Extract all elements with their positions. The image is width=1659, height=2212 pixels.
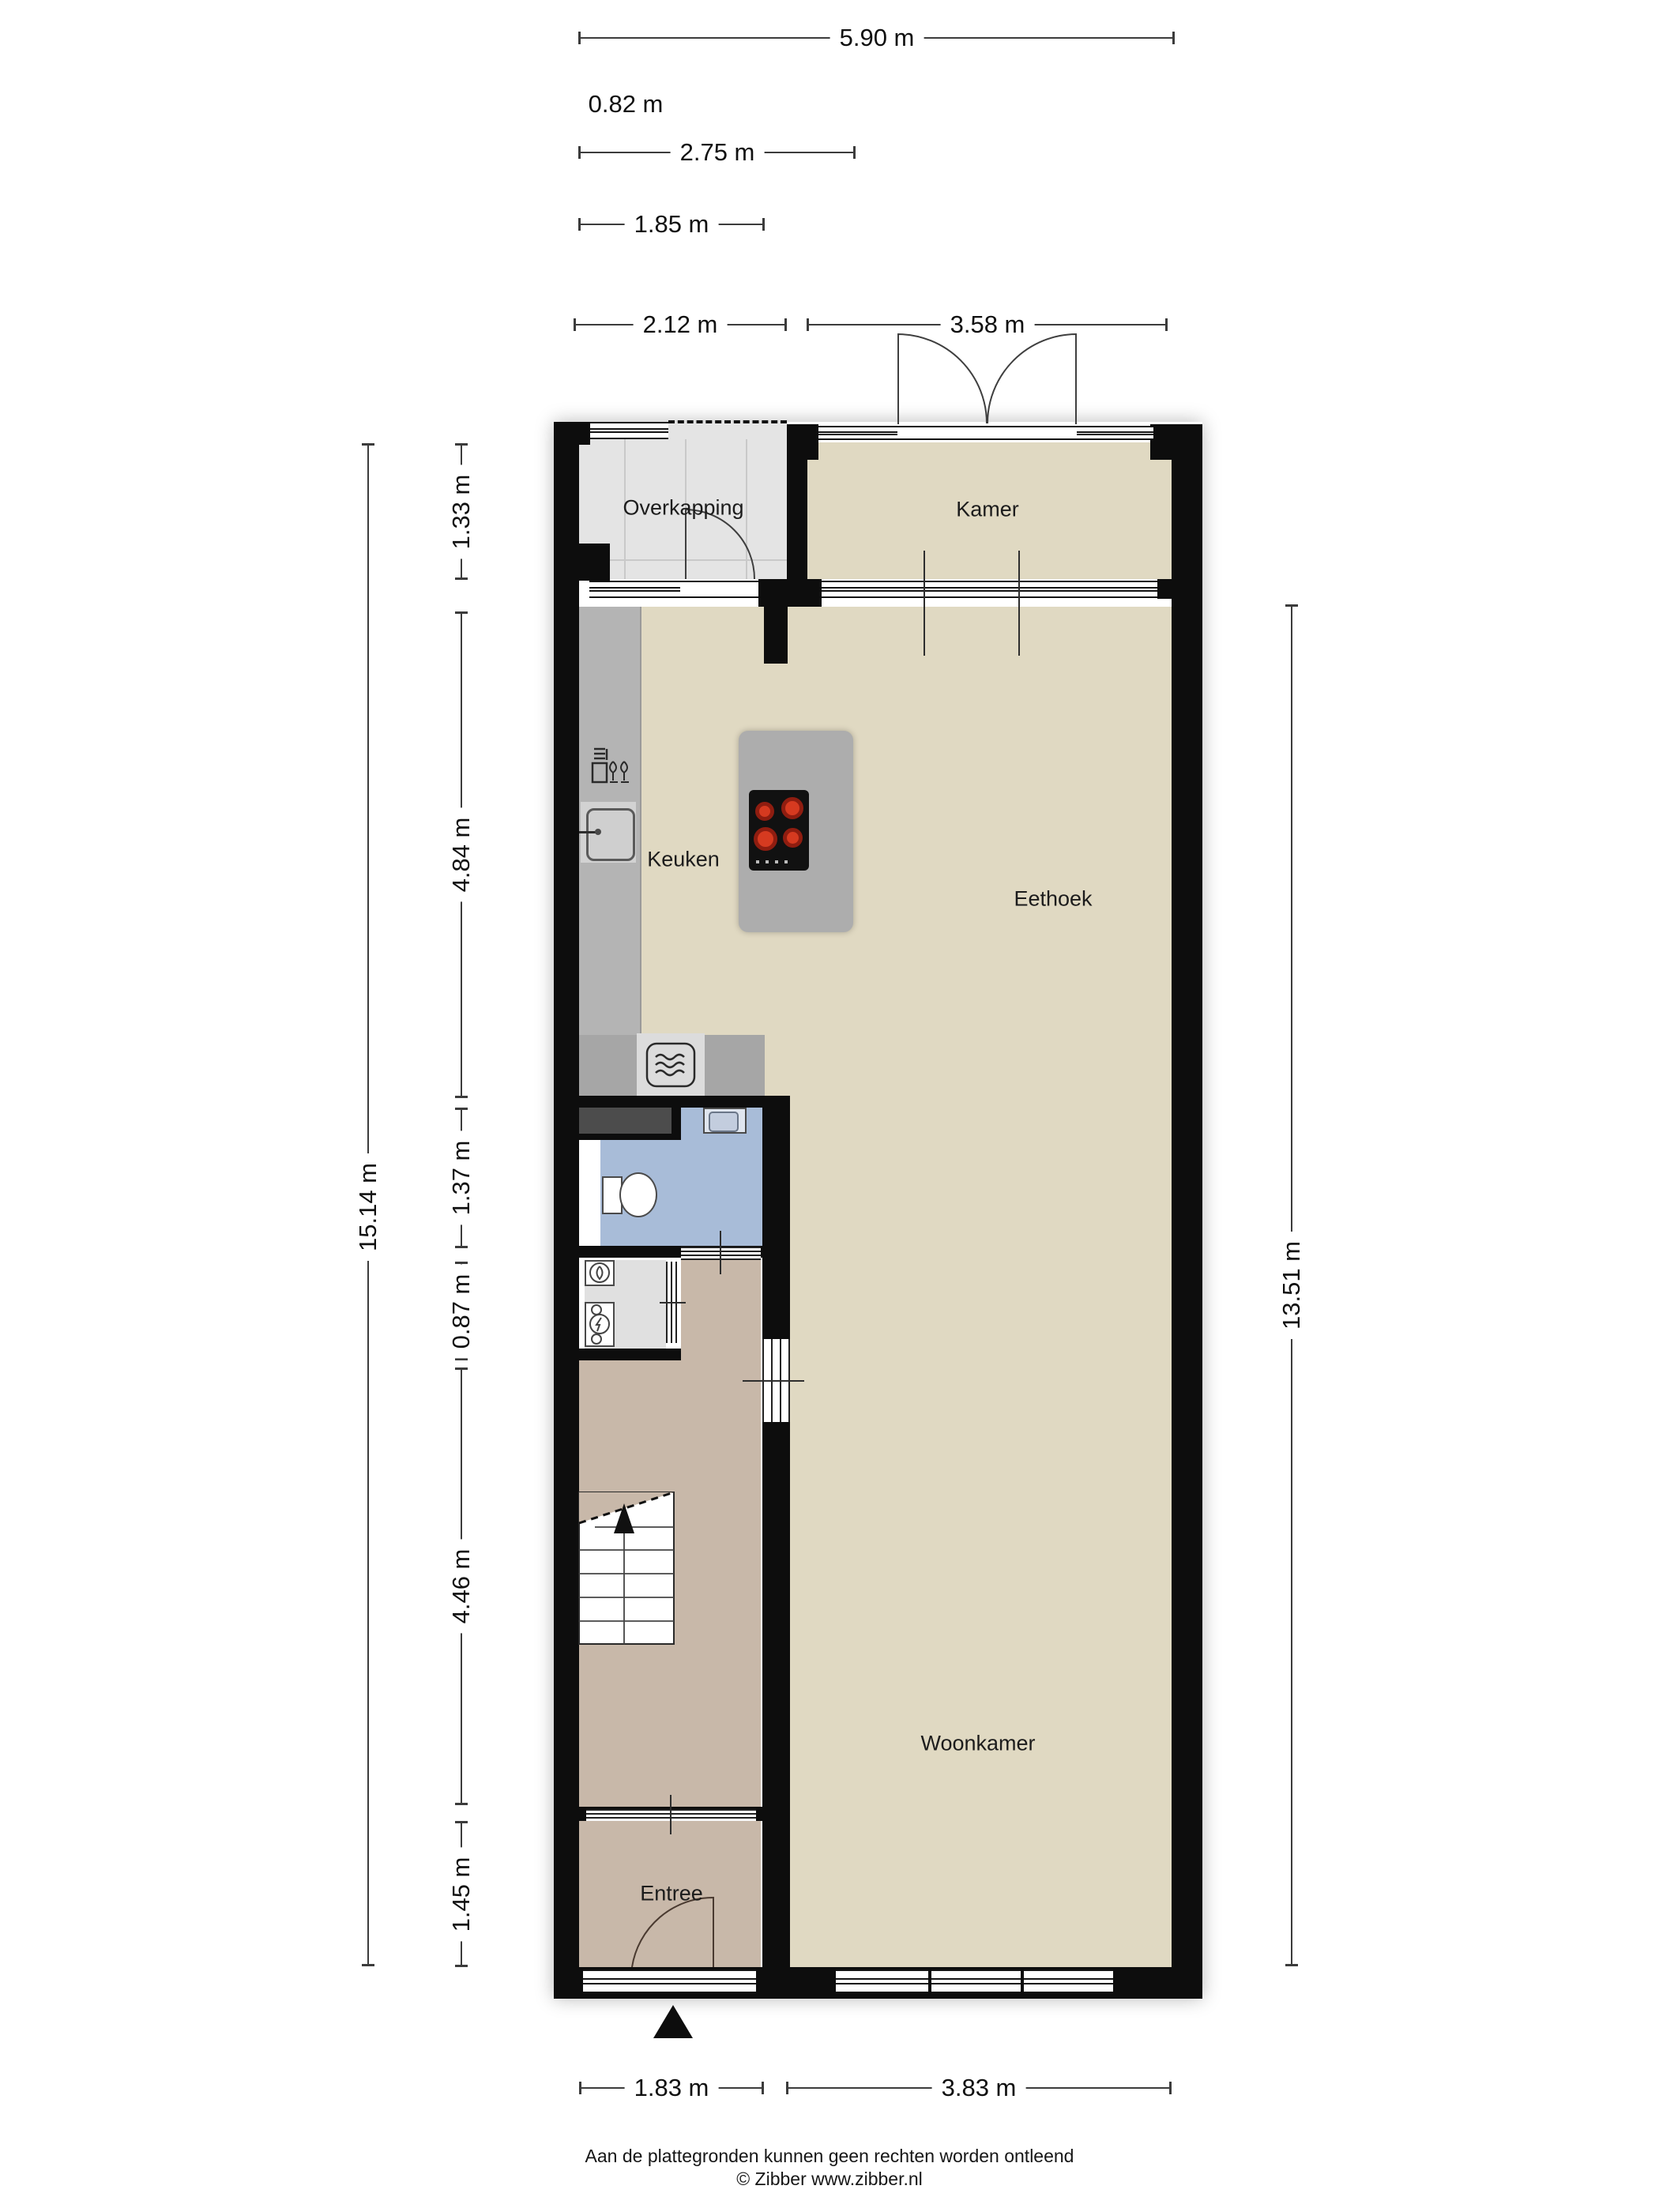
faucet-dot — [595, 829, 601, 835]
window-overkapping-top — [590, 422, 668, 439]
dishwasher-icon — [589, 747, 630, 788]
dim-label-left-1: 4.84 m — [446, 808, 476, 902]
sliding-panel-line — [1018, 551, 1020, 656]
french-door-sill — [897, 426, 1077, 440]
burner-icon — [781, 797, 803, 819]
wall-left — [554, 422, 579, 1999]
footer-copyright: © Zibber www.zibber.nl — [0, 2169, 1659, 2190]
dim-tick — [807, 318, 809, 331]
dim-tick — [853, 146, 856, 159]
wall-kamer-bottom-left — [807, 579, 822, 599]
dim-tick — [1285, 604, 1298, 607]
dim-tick — [578, 218, 581, 231]
wall-overkapping-notch — [579, 544, 610, 581]
dim-tick — [362, 443, 374, 446]
dim-tick — [455, 1965, 468, 1967]
dim-tick — [455, 1358, 468, 1360]
dim-tick — [786, 2082, 788, 2094]
window-kamer-top-left — [818, 426, 897, 440]
dim-tick — [784, 318, 787, 331]
dim-tick — [578, 146, 581, 159]
room-label-keuken: Keuken — [647, 848, 720, 872]
dim-tick — [455, 1367, 468, 1370]
sliding-door-track — [720, 1231, 721, 1274]
hall-floor-upper — [681, 1260, 761, 1360]
dim-label-left-2: 1.37 m — [446, 1131, 476, 1225]
room-label-woonkamer: Woonkamer — [920, 1732, 1035, 1756]
dim-tick — [1285, 1964, 1298, 1966]
room-label-eethoek: Eethoek — [1014, 887, 1092, 912]
dim-label-left-0: 1.33 m — [446, 465, 476, 559]
window-overkapping-bottom — [589, 581, 680, 598]
entrance-arrow-icon — [653, 2005, 693, 2038]
dim-label-left-total: 15.14 m — [353, 1153, 383, 1261]
dim-label-top-4: 2.12 m — [634, 310, 728, 340]
dim-label-bottom-1: 3.83 m — [932, 2073, 1026, 2103]
hand-basin-inner — [709, 1112, 739, 1132]
dim-label-left-5: 1.45 m — [446, 1848, 476, 1942]
dim-tick — [574, 318, 576, 331]
dim-tick — [455, 577, 468, 580]
overkapping-door-sill — [680, 581, 758, 598]
dim-tick — [455, 1246, 468, 1248]
faucet-icon — [579, 831, 596, 833]
sliding-door-track — [743, 1380, 804, 1382]
dim-tick — [455, 1108, 468, 1110]
dim-tick — [455, 611, 468, 614]
dim-label-left-3: 0.87 m — [446, 1265, 476, 1359]
sliding-door-track — [670, 1795, 671, 1834]
dim-label-bottom-0: 1.83 m — [625, 2073, 719, 2103]
dim-label-top-2: 2.75 m — [671, 137, 765, 167]
room-label-entree: Entree — [640, 1882, 703, 1906]
dim-tick — [1172, 32, 1175, 44]
dim-label-top-3: 1.85 m — [625, 209, 719, 239]
sliding-door-track — [660, 1302, 686, 1303]
wall-kitchen-stub — [764, 607, 788, 664]
window-kamer-top-right — [1077, 426, 1153, 440]
window-woonkamer-bottom — [836, 1969, 1113, 1993]
washer-drum-icon — [588, 1262, 611, 1285]
dim-tick — [455, 1803, 468, 1805]
burner-icon — [755, 802, 774, 821]
cabinet-dark — [579, 1108, 671, 1134]
front-door-sill — [620, 1969, 756, 1993]
dim-tick — [455, 443, 468, 446]
dim-label-top-5: 3.58 m — [941, 310, 1035, 340]
dim-label-top-0: 5.90 m — [830, 23, 924, 53]
toilet-door-opening — [581, 1142, 600, 1246]
overkapping-door-icon — [685, 510, 756, 581]
wall-cabinet-jamb — [671, 1108, 681, 1140]
burner-icon — [783, 828, 803, 848]
window-entree-bottom — [583, 1969, 620, 1993]
french-doors-icon — [897, 334, 1077, 424]
dim-label-right: 13.51 m — [1277, 1232, 1307, 1339]
dim-tick — [455, 1821, 468, 1823]
room-label-kamer: Kamer — [956, 498, 1019, 522]
wall-closet-bottom — [579, 1349, 681, 1360]
window-mullion — [1021, 1969, 1024, 1993]
dim-tick — [762, 218, 765, 231]
dim-tick — [762, 2082, 764, 2094]
wall-top-left-corner — [554, 422, 590, 445]
wall-overkapping-kamer-top — [787, 424, 818, 460]
toilet-icon — [619, 1172, 657, 1217]
dim-label-left-4: 4.46 m — [446, 1540, 476, 1634]
woonkamer-floor — [790, 1096, 1172, 1967]
dim-tick — [1169, 2082, 1172, 2094]
overkapping-open-edge — [668, 420, 787, 423]
dim-tick — [362, 1964, 374, 1966]
window-kamer-bottom — [822, 581, 1157, 598]
wall-right — [1172, 424, 1202, 1999]
kitchen-sink-basin — [586, 808, 635, 861]
wall-under-cabinet — [579, 1134, 681, 1140]
dim-label-top-1: 0.82 m — [579, 89, 673, 119]
stairs-icon — [579, 1492, 674, 1644]
dim-tick — [455, 1096, 468, 1098]
wall-hall-right — [762, 1096, 790, 1967]
room-label-overkapping: Overkapping — [623, 496, 743, 521]
window-mullion — [928, 1969, 931, 1993]
microwave-icon — [645, 1041, 697, 1089]
sliding-panel-line — [924, 551, 925, 656]
burner-icon — [754, 827, 777, 851]
dim-tick — [455, 1262, 468, 1264]
wall-kamer-bottom-right — [1157, 579, 1202, 599]
wall-top-right-corner — [1150, 424, 1202, 460]
dim-tick — [578, 32, 581, 44]
dim-tick — [1165, 318, 1168, 331]
dim-tick — [579, 2082, 581, 2094]
dryer-drum-icon — [586, 1303, 613, 1345]
stove-controls — [756, 860, 788, 863]
wall-kitchen-toilet — [579, 1096, 765, 1108]
footer-disclaimer: Aan de plattegronden kunnen geen rechten… — [0, 2146, 1659, 2167]
floorplan-page: { "rooms": { "overkapping": "Overkapping… — [0, 0, 1659, 2212]
